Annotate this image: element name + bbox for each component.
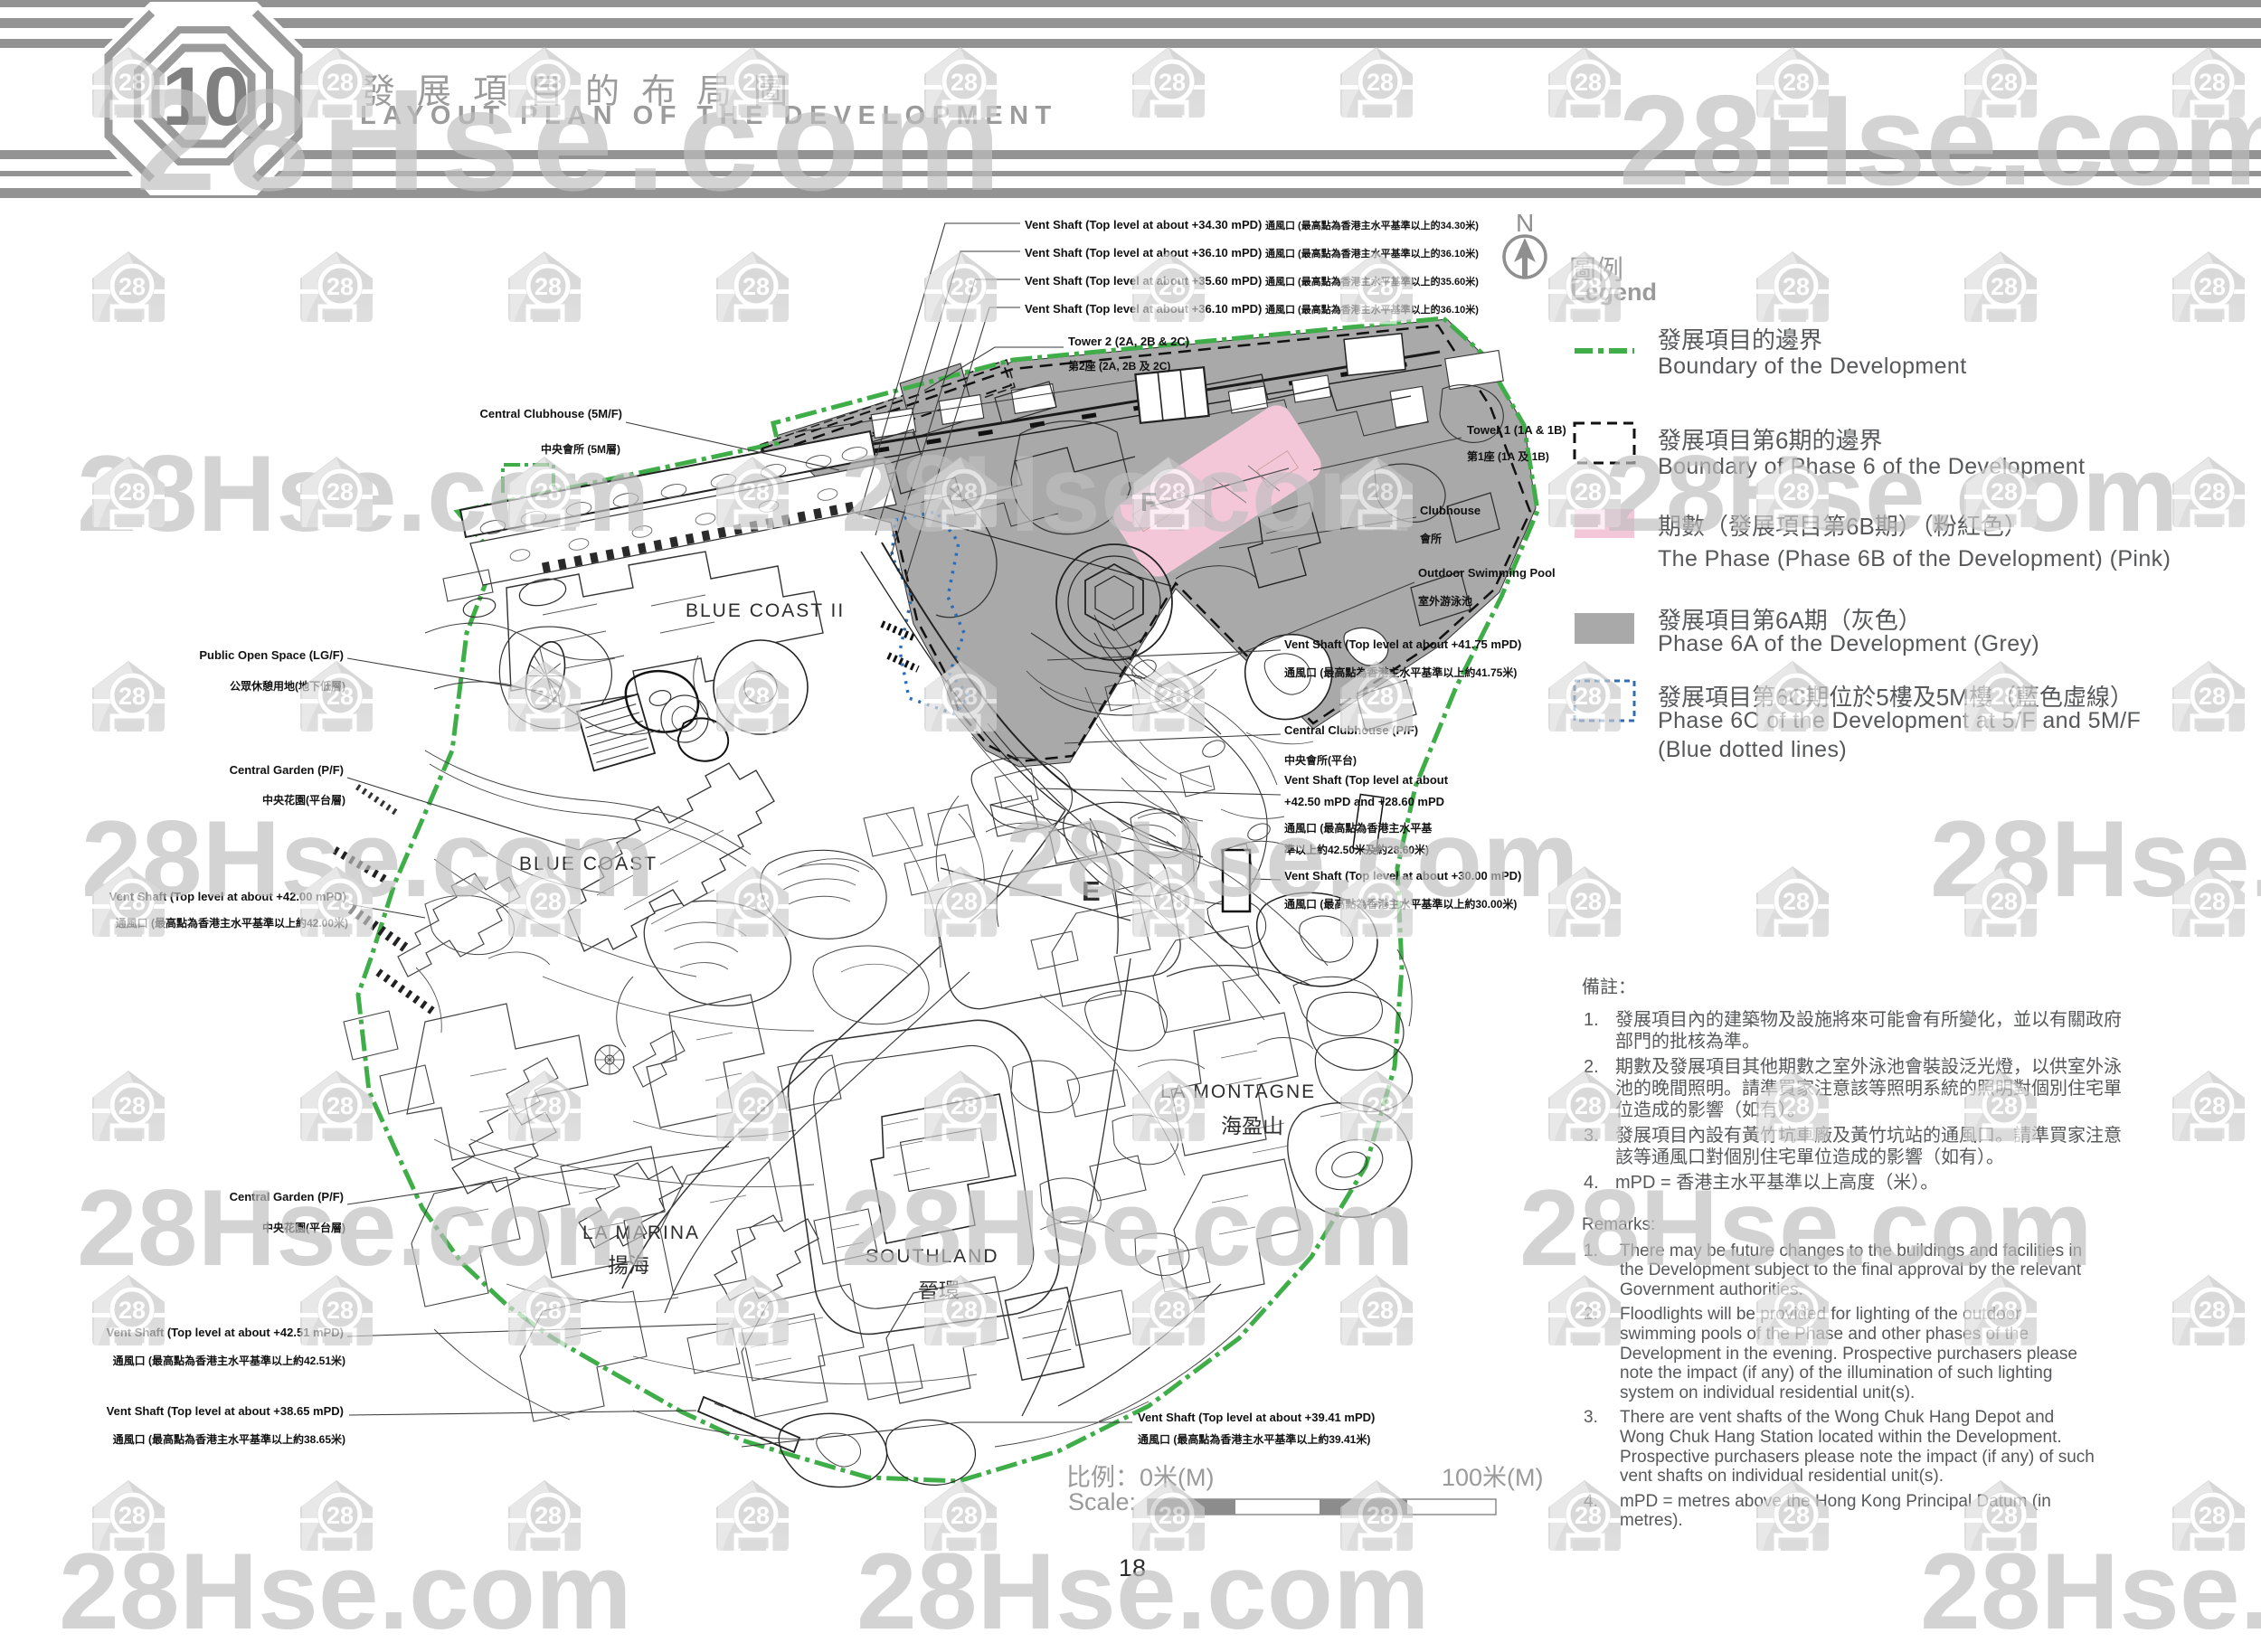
svg-text:N: N <box>1516 210 1534 237</box>
